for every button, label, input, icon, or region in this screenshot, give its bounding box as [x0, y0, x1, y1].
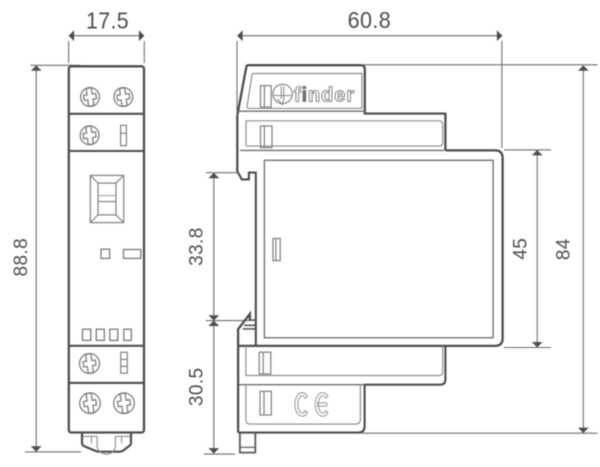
svg-text:84: 84 — [554, 238, 575, 260]
svg-text:60.8: 60.8 — [348, 7, 392, 33]
svg-text:30.5: 30.5 — [186, 368, 207, 407]
svg-text:88.8: 88.8 — [11, 238, 32, 277]
svg-text:45: 45 — [511, 238, 532, 260]
svg-text:17.5: 17.5 — [86, 8, 129, 34]
svg-text:i: i — [302, 84, 308, 106]
svg-text:33.8: 33.8 — [186, 227, 207, 266]
